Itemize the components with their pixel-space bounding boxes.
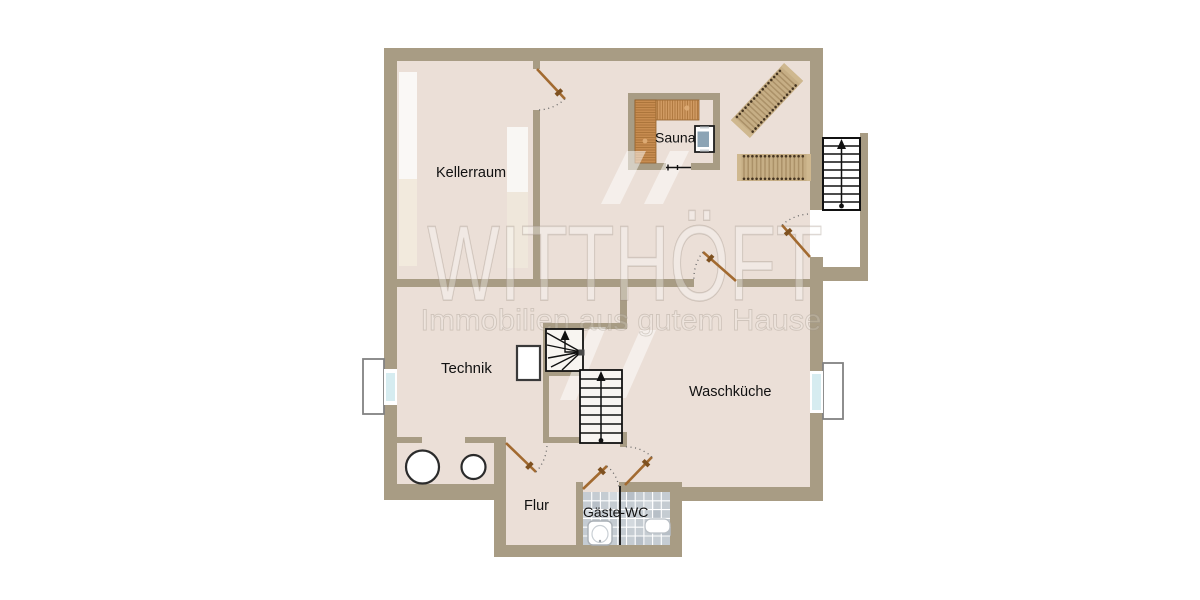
svg-text:Sauna: Sauna xyxy=(655,130,696,146)
svg-text:Flur: Flur xyxy=(524,498,549,514)
svg-text:Waschküche: Waschküche xyxy=(689,384,771,400)
svg-text:Technik: Technik xyxy=(441,360,492,377)
svg-text:Immobilien aus gutem Hause: Immobilien aus gutem Hause xyxy=(421,304,822,337)
svg-text:Kellerraum: Kellerraum xyxy=(436,165,506,181)
svg-text:Gäste-WC: Gäste-WC xyxy=(583,504,648,520)
